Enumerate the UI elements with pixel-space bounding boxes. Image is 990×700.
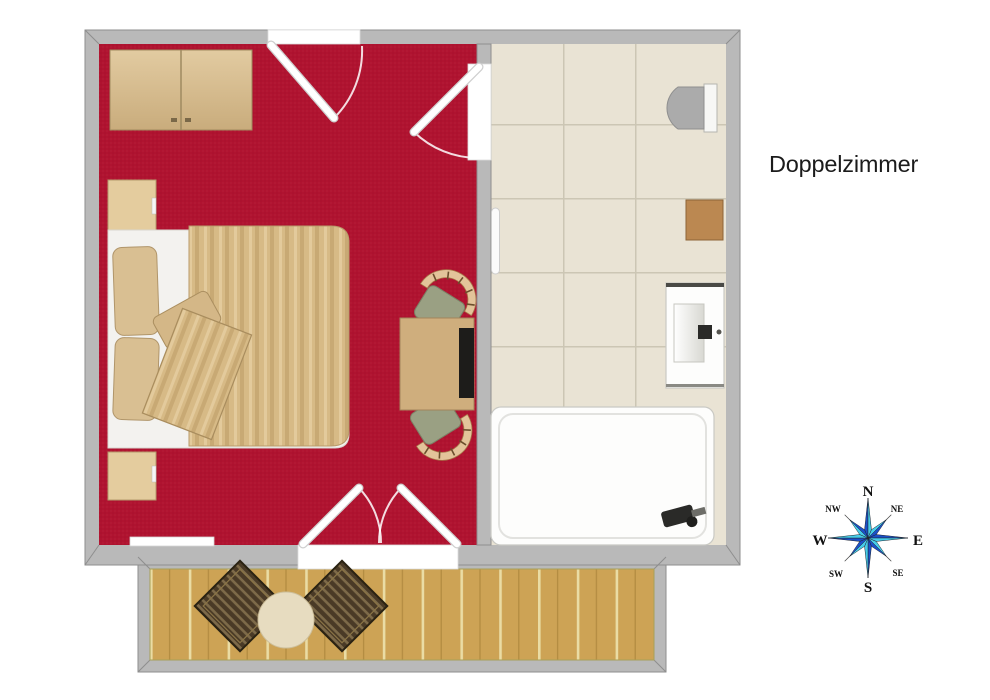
bed-pillow-top: [112, 246, 159, 335]
compass-label-w: W: [813, 533, 828, 549]
toilet: [667, 84, 717, 132]
compass-label-sw: SW: [829, 569, 843, 579]
toilet-cistern: [704, 84, 717, 132]
compass-label-nw: NW: [825, 504, 841, 514]
tv-on-table: [459, 328, 474, 398]
nightstand-top: [108, 180, 156, 232]
wardrobe: [110, 50, 252, 130]
floorplan-drawing: N S W E NW NE SW SE: [0, 0, 990, 700]
compass-label-se: SE: [892, 568, 903, 578]
bathtub: [491, 407, 714, 545]
room-title: Doppelzimmer: [769, 151, 918, 178]
compass-label-n: N: [863, 484, 874, 500]
sink-faucet: [698, 325, 712, 339]
wardrobe-handle-left: [171, 118, 177, 122]
compass-label-s: S: [864, 580, 872, 596]
compass-label-ne: NE: [891, 504, 904, 514]
wardrobe-handle-right: [185, 118, 191, 122]
balcony-round-table: [258, 592, 314, 648]
floorplan-page: N S W E NW NE SW SE Doppelzimmer: [0, 0, 990, 700]
nightstand-bottom: [108, 452, 156, 500]
bathroom-cabinet: [686, 200, 723, 240]
sink: [666, 283, 724, 388]
bedroom-window: [130, 537, 214, 546]
double-bed: [108, 226, 349, 448]
toilet-bowl: [667, 87, 704, 129]
towel-radiator: [492, 208, 500, 274]
compass-label-e: E: [913, 533, 923, 549]
compass-rose: N S W E NW NE SW SE: [813, 484, 924, 596]
